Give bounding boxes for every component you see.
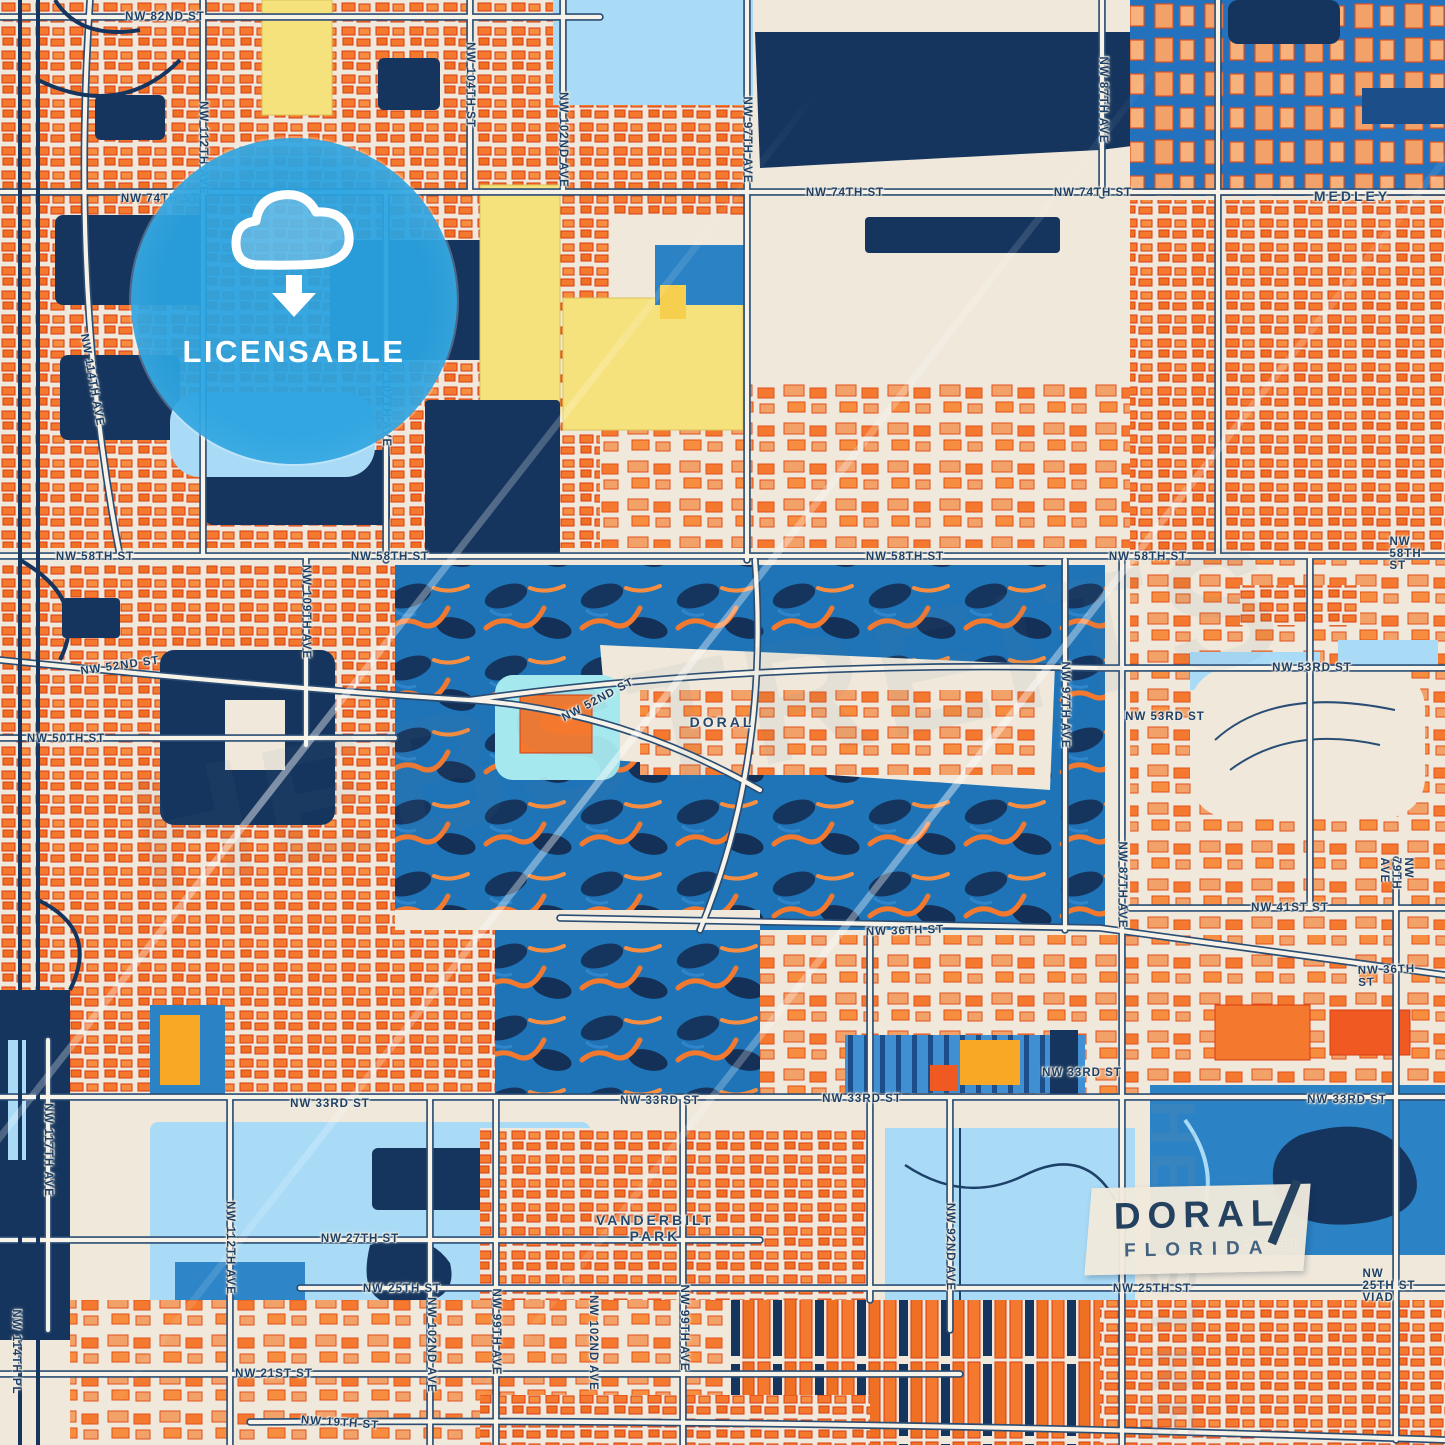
street-label: NW 25TH ST VIAD [1363,1268,1418,1304]
street-label: NW 97TH AVE [741,96,753,183]
street-label: NW 82ND ST [125,11,205,23]
street-label: NW 87TH AVE [1097,56,1109,143]
cloud-download-icon [214,170,374,320]
street-label: NW 33RD ST [290,1098,370,1110]
street-label: NW 58TH ST [56,551,134,563]
street-label: NW 112TH AVE [224,1201,236,1295]
street-label: NW 19TH ST [300,1414,379,1431]
street-label: NW 52ND ST [80,655,161,678]
street-label: NW 33RD ST [620,1095,700,1107]
street-label: NW 117TH AVE [42,1103,54,1197]
street-label: NW 25TH ST [363,1283,441,1295]
street-label: NW 33RD ST [822,1093,902,1105]
street-label: NW 58TH ST [1390,536,1427,572]
place-label: MEDLEY [1314,188,1390,204]
street-label: NW 50TH ST [27,733,105,745]
street-label: NW 92ND AVE [944,1203,956,1291]
street-label: NW 109TH AVE [300,565,312,659]
street-label: NW 36TH ST [866,924,945,939]
place-label: VANDERBILT PARK [596,1212,714,1244]
street-label: NW 58TH ST [866,551,944,563]
street-label: NW 104TH ST [464,42,476,128]
street-label: NW 114TH AVE [78,333,106,427]
street-label: NW 99TH AVE [678,1284,690,1371]
state-name: FLORIDA [1114,1237,1281,1262]
street-label: NW 33RD ST [1042,1067,1122,1079]
street-label: NW 97TH AVE [1059,661,1071,748]
street-label: NW 102ND AVE [557,92,569,188]
street-label: NW 27TH ST [321,1233,399,1245]
street-label: NW 52ND ST [560,676,636,724]
street-label: NW 53RD ST [1125,711,1205,723]
street-label: NW 102ND AVE [587,1295,599,1391]
street-label: NW 79TH AVE [1378,858,1414,907]
street-label: NW 58TH ST [351,551,429,563]
street-label: NW 102ND AVE [425,1297,437,1393]
map-poster: HEBSTREITS HEBSTREITS NW 82ND STNW 74TH … [0,0,1445,1445]
place-label: DORAL [690,714,755,730]
street-label: NW 74TH ST [806,187,884,199]
street-label: NW 53RD ST [1272,662,1352,674]
street-label: NW 33RD ST [1307,1094,1387,1106]
street-label: NW 114TH PL [10,1309,22,1394]
street-label: NW 87TH AVE [1116,841,1128,928]
street-label: NW 99TH AVE [490,1288,502,1375]
license-badge-label: LICENSABLE [182,334,405,370]
street-label: NW 25TH ST [1113,1283,1191,1295]
street-label: NW 36TH ST [1358,963,1417,989]
street-label: NW 74TH ST [1054,187,1132,199]
license-badge[interactable]: LICENSABLE [131,138,457,464]
street-label: NW 41ST ST [1251,902,1329,914]
street-label: NW 21ST ST [235,1368,313,1380]
city-name: DORAL [1113,1194,1280,1236]
street-label: NW 58TH ST [1109,551,1187,563]
